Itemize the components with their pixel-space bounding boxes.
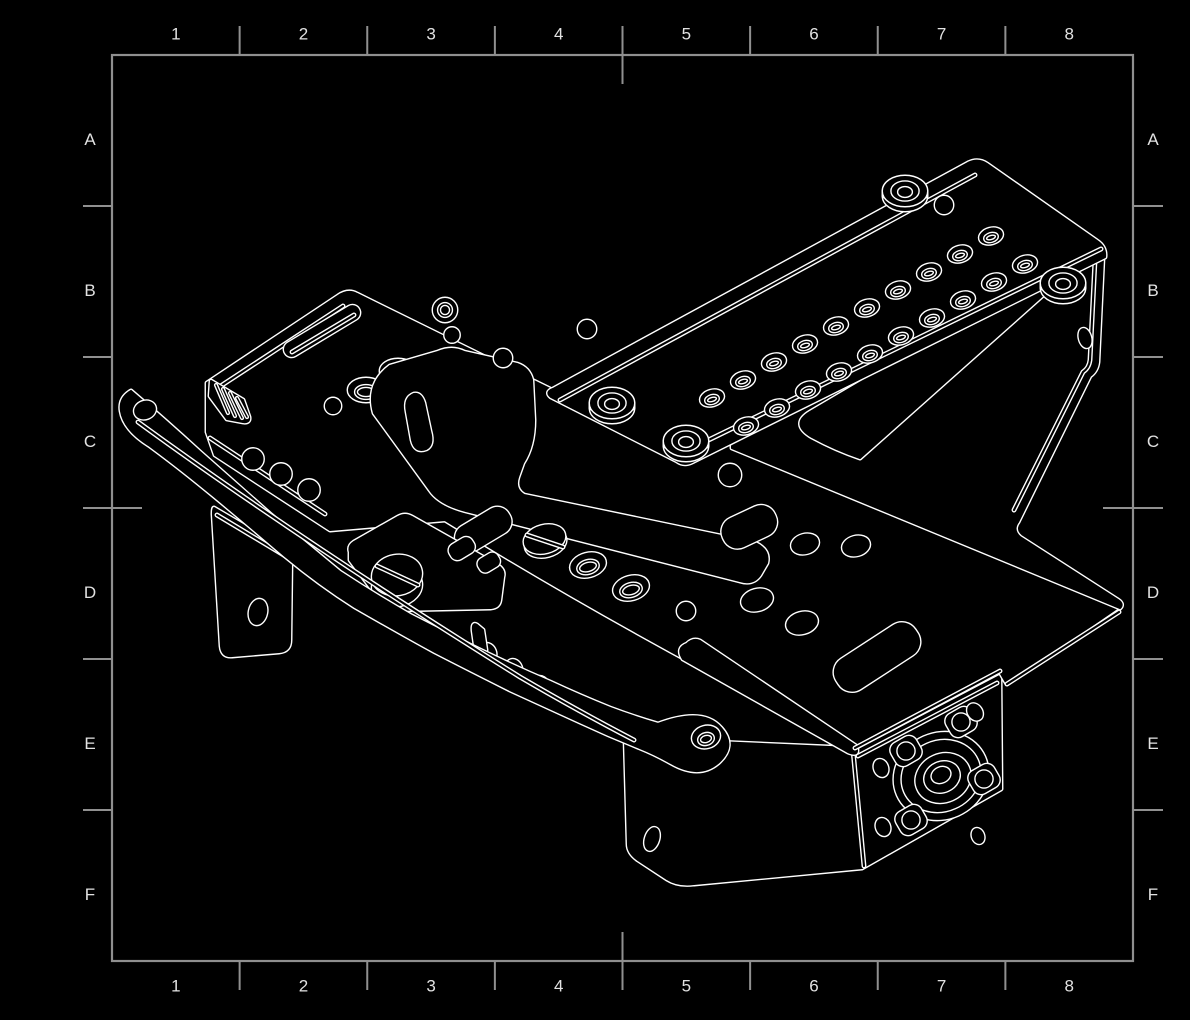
zone-label-right-D: D xyxy=(1147,583,1159,602)
zone-label-left-F: F xyxy=(85,885,95,904)
zone-label-left-A: A xyxy=(84,130,96,149)
zone-label-bottom-1: 1 xyxy=(171,977,180,996)
zone-label-bottom-2: 2 xyxy=(299,977,308,996)
chassis-isometric-drawing xyxy=(121,161,1122,885)
zone-label-top-4: 4 xyxy=(554,25,563,44)
zone-label-top-2: 2 xyxy=(299,25,308,44)
zone-label-right-F: F xyxy=(1148,885,1158,904)
corner-boss xyxy=(591,389,633,422)
zone-label-bottom-8: 8 xyxy=(1064,977,1073,996)
zone-label-left-C: C xyxy=(84,432,96,451)
zone-label-bottom-3: 3 xyxy=(426,977,435,996)
zone-label-top-5: 5 xyxy=(682,25,691,44)
zone-label-left-D: D xyxy=(84,583,96,602)
zone-label-bottom-7: 7 xyxy=(937,977,946,996)
corner-boss xyxy=(1042,269,1084,302)
cad-drawing-sheet: 1122334455667788AABBCCDDEEFF xyxy=(0,0,1190,1020)
zone-label-bottom-5: 5 xyxy=(682,977,691,996)
zone-label-top-3: 3 xyxy=(426,25,435,44)
zone-label-left-E: E xyxy=(84,734,95,753)
zone-label-top-7: 7 xyxy=(937,25,946,44)
corner-boss xyxy=(665,427,707,460)
zone-label-top-8: 8 xyxy=(1064,25,1073,44)
zone-label-right-C: C xyxy=(1147,432,1159,451)
zone-label-right-E: E xyxy=(1147,734,1158,753)
blueprint-page: 1122334455667788AABBCCDDEEFF xyxy=(0,0,1190,1020)
zone-label-right-B: B xyxy=(1147,281,1158,300)
zone-label-bottom-4: 4 xyxy=(554,977,563,996)
zone-label-top-6: 6 xyxy=(809,25,818,44)
zone-label-bottom-6: 6 xyxy=(809,977,818,996)
corner-boss xyxy=(884,177,926,210)
zone-label-left-B: B xyxy=(84,281,95,300)
zone-label-right-A: A xyxy=(1147,130,1159,149)
zone-label-top-1: 1 xyxy=(171,25,180,44)
